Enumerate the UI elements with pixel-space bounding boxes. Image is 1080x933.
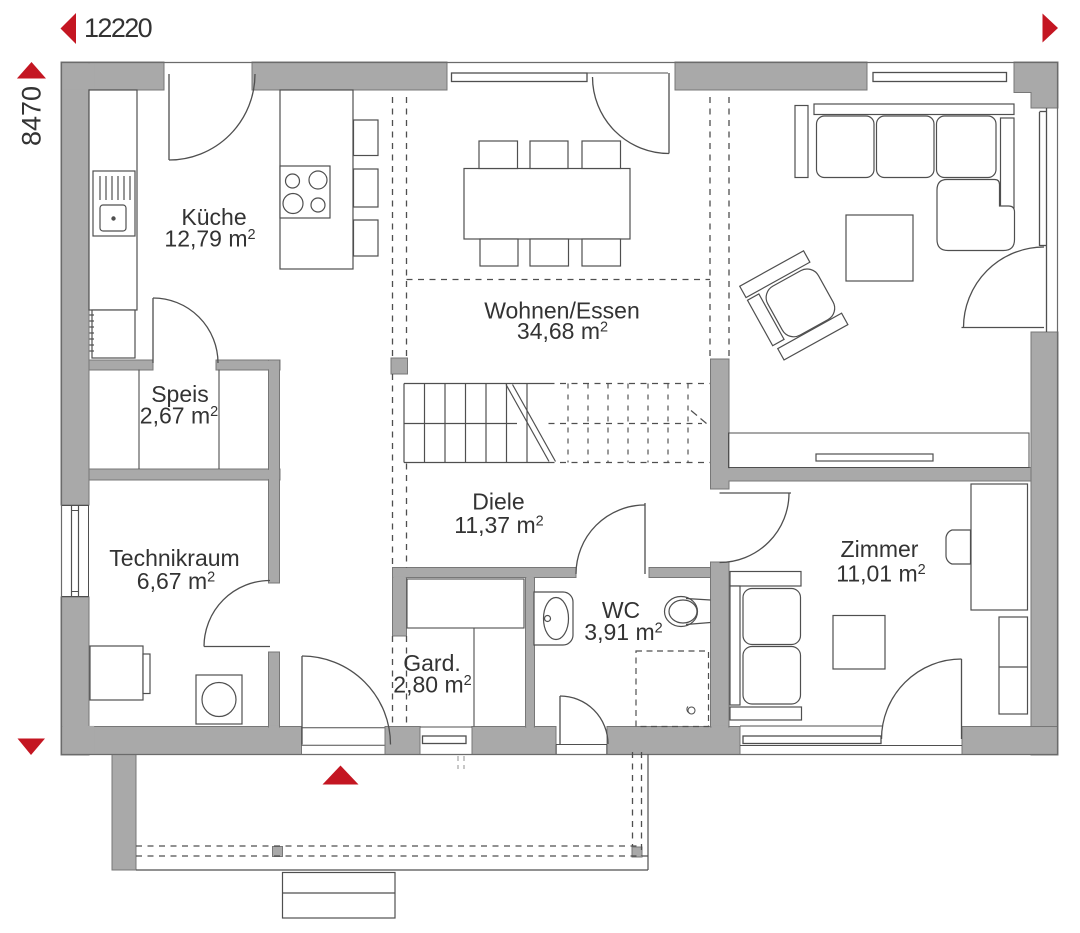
svg-text:12220: 12220 [84,13,152,43]
svg-text:11,01 m2: 11,01 m2 [836,561,925,587]
svg-text:34,68 m2: 34,68 m2 [517,318,608,344]
svg-text:6,67 m2: 6,67 m2 [137,568,215,594]
svg-text:12,79 m2: 12,79 m2 [164,226,255,252]
svg-text:Diele: Diele [472,489,524,515]
svg-text:8470: 8470 [17,86,47,146]
svg-text:Zimmer: Zimmer [841,536,919,562]
svg-text:2,80 m2: 2,80 m2 [393,672,471,698]
svg-text:3,91 m2: 3,91 m2 [584,619,662,645]
svg-text:2,67 m2: 2,67 m2 [140,403,218,429]
svg-text:11,37 m2: 11,37 m2 [454,512,543,538]
